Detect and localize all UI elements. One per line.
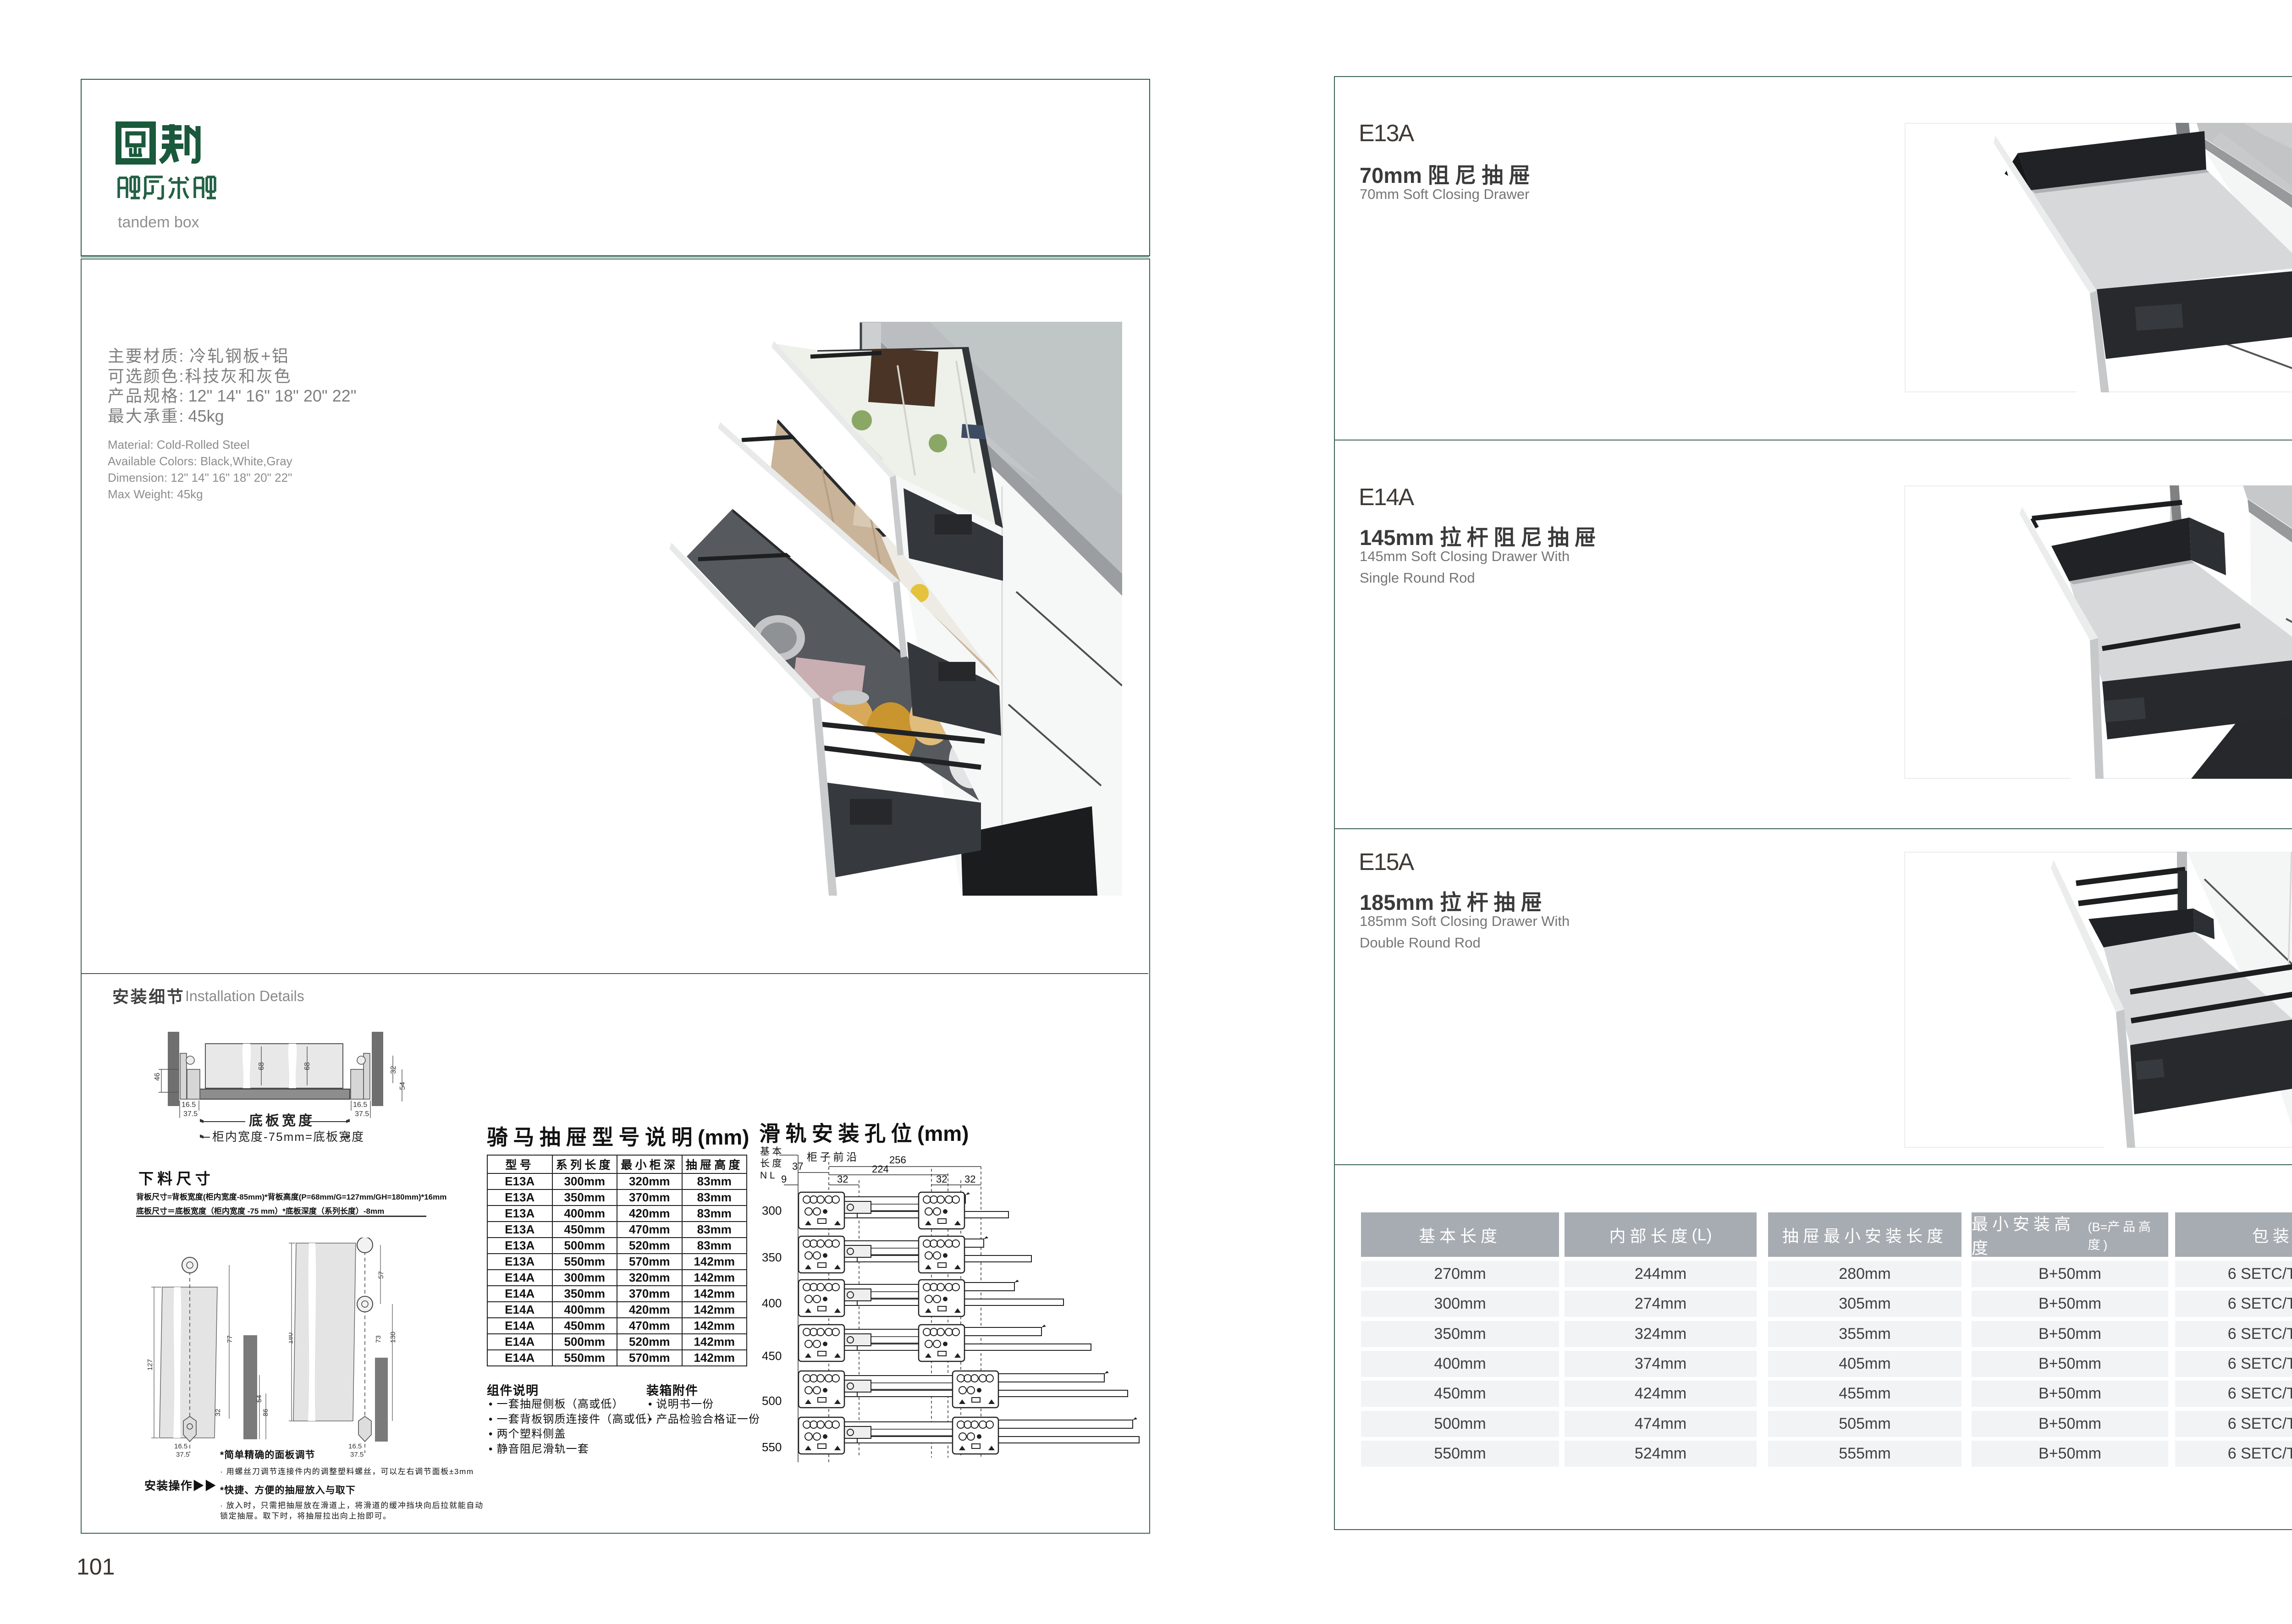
svg-text:73: 73 — [375, 1335, 382, 1343]
svg-text:500: 500 — [762, 1394, 782, 1408]
svg-text:37: 37 — [792, 1161, 803, 1172]
svg-text:16.5: 16.5 — [353, 1101, 367, 1109]
svg-text:400: 400 — [762, 1296, 782, 1310]
svg-text:46: 46 — [154, 1073, 161, 1081]
svg-text:127: 127 — [147, 1359, 154, 1371]
svg-text:32: 32 — [936, 1173, 947, 1185]
svg-text:54: 54 — [399, 1082, 407, 1090]
svg-text:224: 224 — [872, 1163, 889, 1175]
svg-text:32: 32 — [964, 1173, 975, 1185]
svg-text:32: 32 — [390, 1066, 397, 1074]
svg-text:32: 32 — [837, 1173, 848, 1185]
svg-text:77: 77 — [226, 1335, 234, 1343]
svg-text:37.5: 37.5 — [183, 1110, 198, 1118]
svg-text:9: 9 — [781, 1173, 787, 1185]
svg-text:450: 450 — [762, 1349, 782, 1363]
svg-text:130: 130 — [389, 1332, 397, 1343]
svg-text:57: 57 — [377, 1271, 385, 1279]
svg-text:350: 350 — [762, 1250, 782, 1264]
svg-text:300: 300 — [762, 1204, 782, 1217]
svg-text:37.5: 37.5 — [355, 1110, 369, 1118]
svg-text:37.5: 37.5 — [176, 1451, 189, 1459]
svg-text:256: 256 — [889, 1154, 906, 1166]
svg-text:底板宽度: 底板宽度 — [249, 1113, 315, 1129]
svg-text:32: 32 — [214, 1409, 222, 1416]
svg-text:550: 550 — [762, 1440, 782, 1454]
svg-text:16.5: 16.5 — [182, 1101, 196, 1109]
svg-text:16.5: 16.5 — [174, 1442, 187, 1450]
